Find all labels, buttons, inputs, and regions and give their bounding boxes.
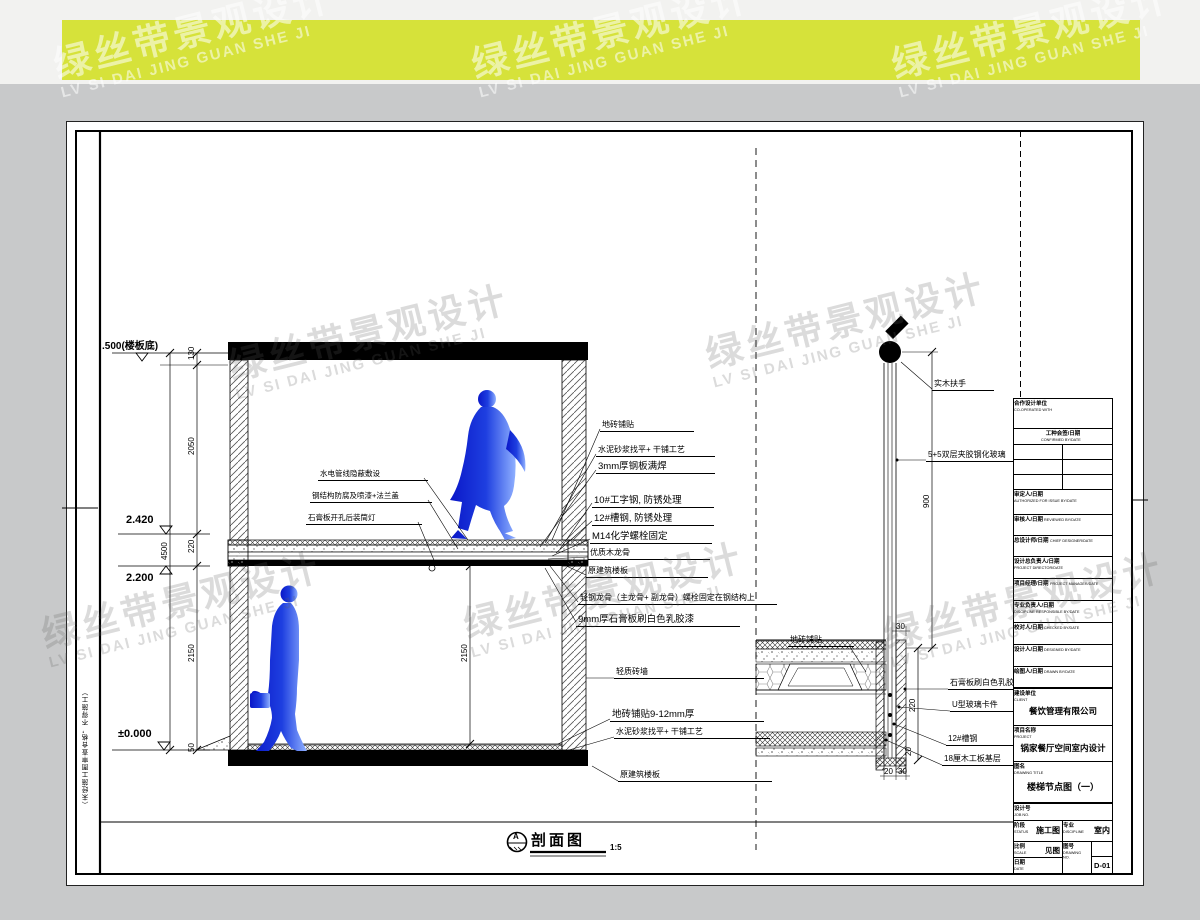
tb-row-chief-designer: 总设计师/日期 CHIEF DESIGNER/DATE — [1014, 536, 1112, 557]
dim-20-right: 20 — [904, 747, 913, 756]
tb-project-value: 锅家餐厅空间室内设计 — [1014, 742, 1112, 754]
annotation-mep-conduit: 水电管线隐蔽敷设 — [318, 468, 428, 481]
annotation-chemical-anchor: M14化学螺栓固定 — [590, 528, 712, 544]
annotation-existing-slab-lower: 原建筑楼板 — [618, 769, 772, 782]
annotation-gypsum-ceiling: 9mm厚石膏板刷白色乳胶漆 — [576, 611, 740, 627]
tb-confirm-cn: 工种会签/日期 — [1046, 431, 1081, 437]
tb-confirm-en: CONFIRMED BY/DATE — [1041, 437, 1081, 442]
dim-220: 220 — [187, 539, 196, 553]
tb-grid-row1 — [1014, 445, 1112, 460]
dim-mid-2150: 2150 — [460, 644, 469, 662]
tb-project-cell: 项目名称PROJECT 锅家餐厅空间室内设计 — [1014, 726, 1112, 762]
dim-total-4500: 4500 — [160, 542, 169, 560]
tb-row-discipline-responsible: 专业负责人/日期 DISCIPLINE RESPONSIBLE BY/DATE — [1014, 601, 1112, 623]
annotation-wood-joist: 优质木龙骨 — [588, 547, 710, 560]
dim-30-bottom: 30 — [898, 767, 907, 776]
margin-note-vertical: （未经施工图审查合格，不得施工） — [82, 688, 92, 808]
tb-row-drawn: 绘图人/日期 DRAWN BY/DATE — [1014, 667, 1112, 689]
annotation-downlight-cutout: 石膏板开孔后装筒灯 — [306, 512, 422, 525]
annotation-ibeam: 10#工字钢, 防锈处理 — [592, 492, 714, 508]
tb-coop-en: CO-OPERATED WITH — [1014, 407, 1052, 412]
tb-row-project-manager: 项目经理/日期 PROJECT MANAGER/DATE — [1014, 579, 1112, 601]
tb-drawing-title-value: 楼梯节点图（一） — [1014, 780, 1112, 793]
annotation-steel-anticorrosion: 钢结构防腐及喷漆+法兰盖 — [310, 490, 432, 503]
drawing-sheet-page: 130 2050 220 2150 50 4500 2150 900 220 2… — [0, 0, 1200, 920]
dim-30-top: 30 — [896, 622, 905, 631]
dim-20-bottom: 20 — [884, 767, 893, 776]
dim-2050: 2050 — [187, 437, 196, 455]
tb-coop-cn: 合作设计单位 — [1014, 401, 1047, 407]
dim-50: 50 — [187, 743, 196, 752]
annotation-channel-steel: 12#槽钢, 防锈处理 — [592, 510, 714, 526]
annotation-wood-handrail: 实木扶手 — [932, 378, 994, 391]
tb-drawing-no-value: D-01 — [1092, 856, 1112, 875]
annotation-steel-plate-weld: 3mm厚钢板满焊 — [596, 458, 715, 474]
view-scale: 1:5 — [610, 843, 622, 852]
tb-coop-cell: 合作设计单位 CO-OPERATED WITH — [1014, 399, 1112, 429]
elevation-label-zero: ±0.000 — [118, 728, 152, 740]
annotation-floor-tile: 地砖铺贴 — [600, 419, 694, 432]
annotation-light-brick-wall: 轻质砖墙 — [614, 666, 764, 679]
elevation-label-2420: 2.420 — [126, 514, 154, 526]
tb-row-project-director: 设计总负责人/日期 PROJECT DIRECTOR/DATE — [1014, 557, 1112, 579]
view-title: 剖面图 — [531, 829, 585, 850]
dim-2150: 2150 — [187, 644, 196, 662]
tb-job-no-cell: 设计号JOB NO. — [1014, 804, 1112, 821]
tb-grid-row3 — [1014, 475, 1112, 490]
tb-status-row: 阶段 施工图 STATUS 专业 室内 DISCIPLINE — [1014, 821, 1112, 842]
tb-drawing-title-cell: 图名DRAWING TITLE 楼梯节点图（一） — [1014, 762, 1112, 804]
tb-bottom-row: 比例 见图 SCALE 日期 DATE 图号DRAWING NO. D-01 — [1014, 842, 1112, 875]
annotation-tile-detail: 地砖铺贴 — [788, 634, 854, 647]
tb-client-cell: 建设单位CLIENT 餐饮管理有限公司 — [1014, 689, 1112, 726]
tb-row-checked: 校对人/日期 CHECKED BY/DATE — [1014, 623, 1112, 645]
annotation-tile-9-12mm: 地砖铺贴9-12mm厚 — [610, 706, 764, 722]
tb-status-value: 施工图 — [1036, 825, 1060, 836]
tb-client-value: 餐饮管理有限公司 — [1014, 705, 1112, 717]
tb-row-designed: 设计人/日期 DESIGNED BY/DATE — [1014, 645, 1112, 667]
dim-220-detail: 220 — [908, 698, 917, 712]
tb-scale-value: 见图 — [1045, 845, 1060, 856]
elevation-label-2200: 2.200 — [126, 572, 154, 584]
section-mark-letter: A — [513, 832, 519, 841]
tb-grid-row2 — [1014, 460, 1112, 475]
annotation-existing-slab: 原建筑楼板 — [586, 565, 708, 578]
elevation-label-top: .500(楼板底) — [102, 337, 158, 352]
annotation-lightsteel-keel: 轻钢龙骨（主龙骨+ 副龙骨）螺栓固定在钢结构上 — [578, 592, 777, 605]
title-block: 合作设计单位 CO-OPERATED WITH 工种会签/日期 CONFIRME… — [1013, 398, 1113, 874]
tb-discipline-value: 室内 — [1094, 825, 1110, 836]
tb-row-reviewed: 审核人/日期 REVIEWED BY/DATE — [1014, 515, 1112, 536]
annotation-mortar-leveling: 水泥砂浆找平+ 干铺工艺 — [596, 444, 715, 457]
tb-confirm-header: 工种会签/日期 CONFIRMED BY/DATE — [1014, 429, 1112, 445]
annotation-mortar-leveling-lower: 水泥砂浆找平+ 干铺工艺 — [614, 726, 770, 739]
dim-130: 130 — [187, 346, 196, 360]
tb-row-authorized: 审定人/日期 AUTHORIZED FOR ISSUE BY/DATE — [1014, 490, 1112, 515]
dim-900: 900 — [922, 494, 931, 508]
